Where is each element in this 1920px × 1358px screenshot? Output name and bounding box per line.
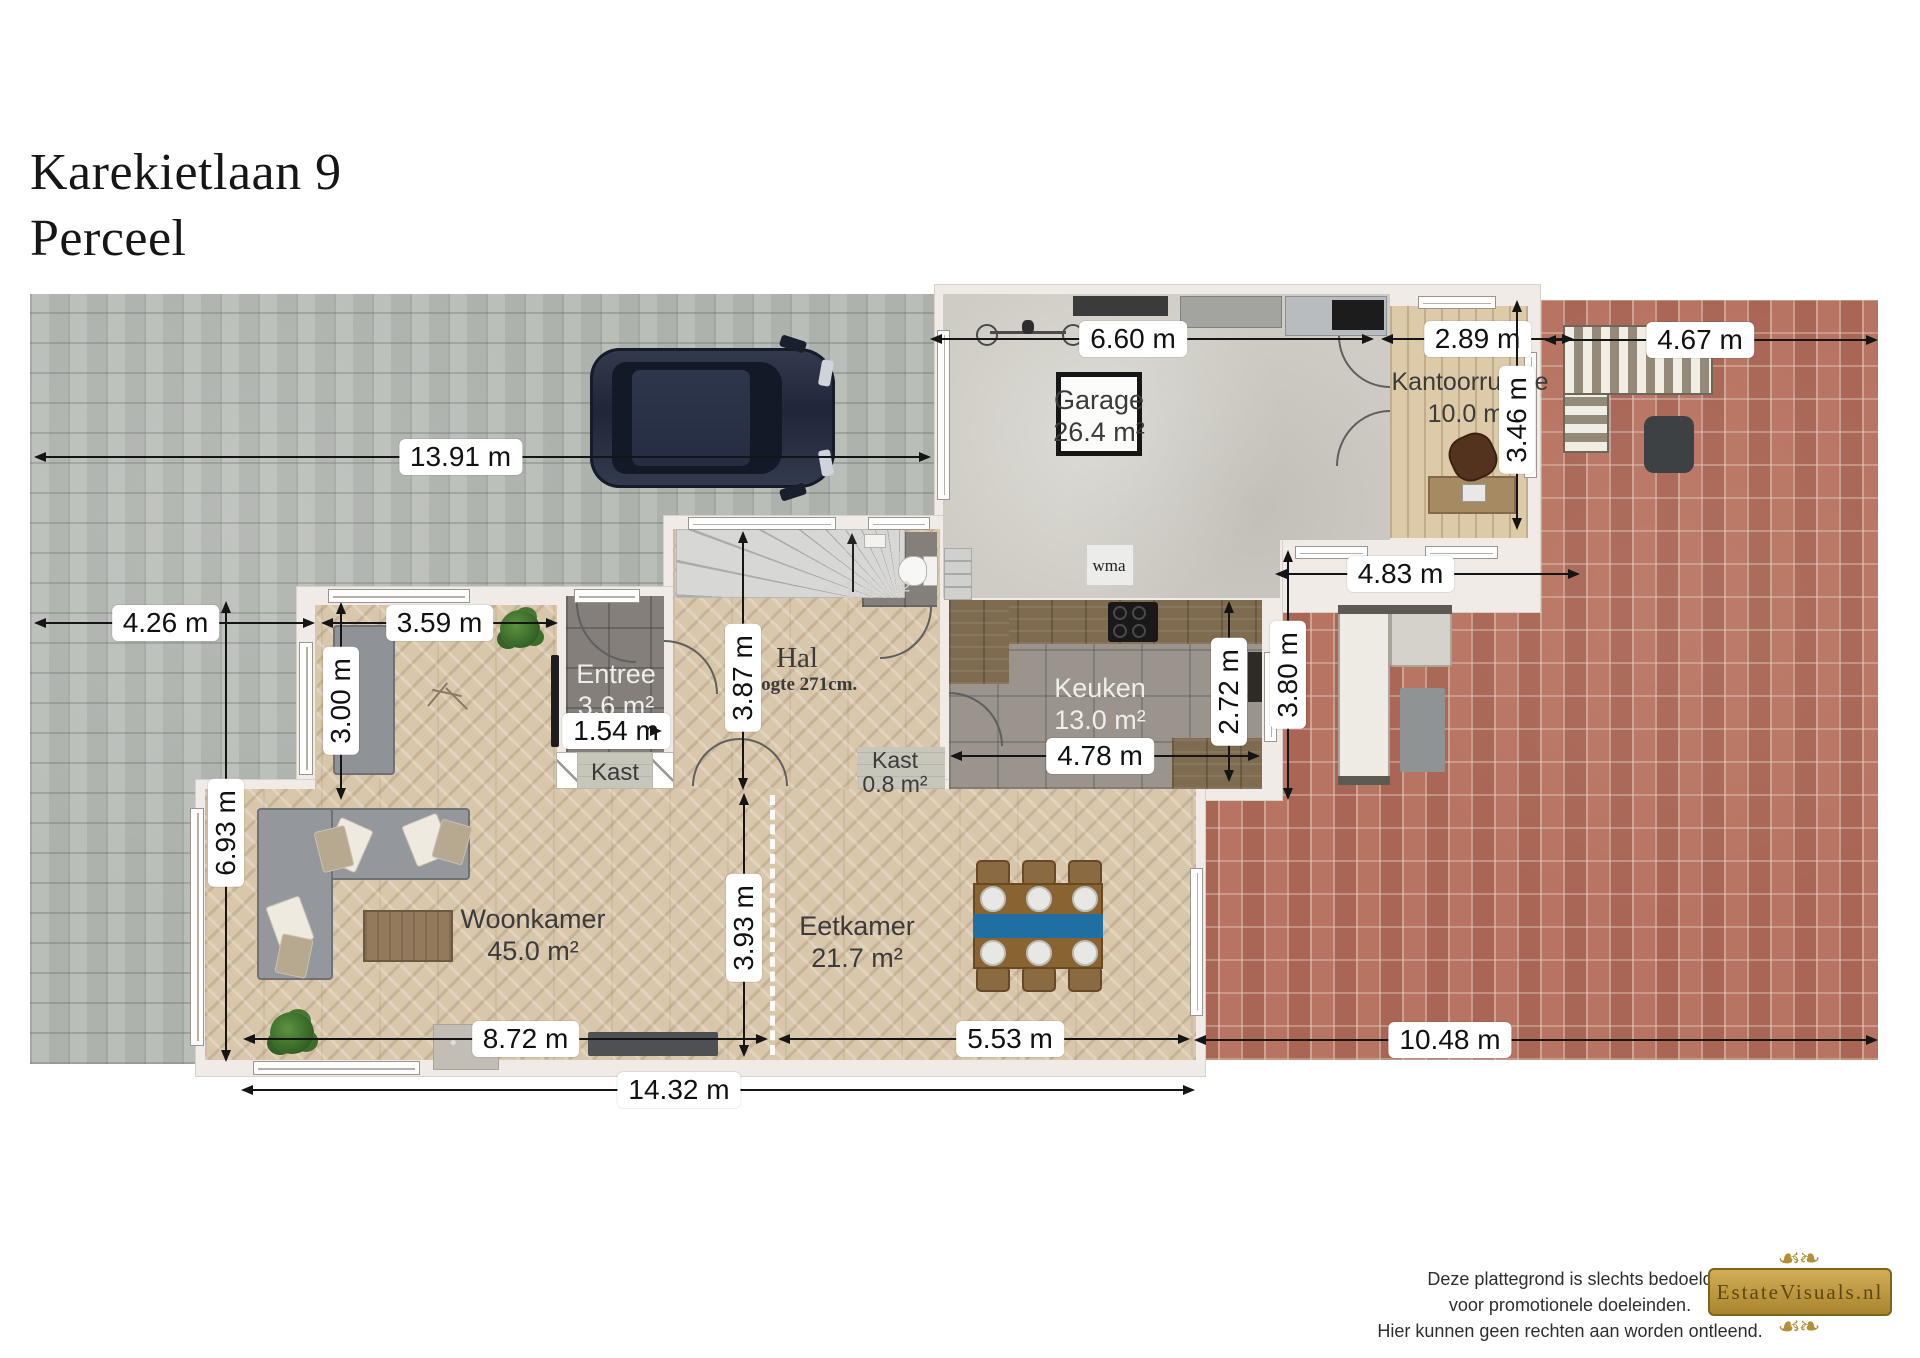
car-roof (632, 370, 750, 466)
window-eetkamer-right (1190, 868, 1203, 1016)
window-kantoor-top (1418, 296, 1496, 309)
dim-patio-width: 10.48 m (1196, 1039, 1876, 1041)
toilet-basin (864, 534, 886, 548)
logo-flourish-bottom: ☙❧ (1708, 1316, 1888, 1336)
dim-living-depth: 3.93 m (743, 795, 745, 1055)
dim-patio-depth: 3.80 m (1287, 552, 1289, 798)
patio-dark-table (1644, 416, 1694, 473)
dim-woonkamer-width: 8.72 m (245, 1038, 766, 1040)
tv-cabinet (588, 1032, 718, 1056)
eetkamer-label: Eetkamer 21.7 m² (757, 910, 957, 974)
plant-living (270, 1012, 314, 1054)
burner (1132, 624, 1146, 638)
window-living-left (190, 808, 204, 1046)
plate (980, 886, 1006, 912)
burner (1113, 606, 1127, 620)
garage-cabinet (1180, 296, 1282, 328)
fridge (1248, 652, 1262, 702)
window-toilet-top (868, 517, 930, 530)
window-sitting-left (299, 642, 313, 775)
kast-hal-label: Kast 0.8 m² (835, 748, 955, 796)
lounge-sofa-back-top (1338, 605, 1452, 614)
dim-garage-width: 6.60 m (932, 338, 1372, 340)
dim-entree-width: 1.54 m (572, 730, 660, 732)
dim-house-width: 14.32 m (243, 1089, 1193, 1091)
plate (1072, 886, 1098, 912)
plate (1026, 940, 1052, 966)
toilet-label: 1.4 m² (836, 575, 916, 607)
title-address: Karekietlaan 9 (30, 140, 342, 206)
plate (1026, 886, 1052, 912)
logo-plaque: EstateVisuals.nl (1708, 1268, 1892, 1316)
woonkamer-label: Woonkamer 45.0 m² (433, 903, 633, 967)
lounge-sofa-back-bottom (1338, 776, 1390, 785)
plate (980, 940, 1006, 966)
garage-label: Garage 26.4 m² (1011, 384, 1187, 448)
dim-garden-left-depth: 6.93 m (225, 603, 227, 1060)
burner (1132, 606, 1146, 620)
dim-sitting-depth: 3.00 m (340, 604, 342, 798)
logo-flourish-top: ☙❧ (1708, 1248, 1888, 1268)
kantoorruimte-label: Kantoorruimte 10.0 m² (1370, 366, 1570, 430)
floorplan-page: Karekietlaan 9 Perceel (0, 0, 1920, 1358)
patio-coffee-table (1400, 688, 1445, 772)
garage-step (944, 548, 972, 600)
dim-patio-top-width: 4.67 m (1546, 339, 1876, 341)
dim-sitting-width: 3.59 m (323, 622, 556, 624)
garage-stove (1332, 300, 1384, 330)
dim-eetkamer-width: 5.53 m (780, 1038, 1188, 1040)
title-subtitle: Perceel (30, 206, 342, 272)
window-sitting-top (328, 589, 470, 603)
wasmachine-label: wma (1086, 556, 1132, 576)
window-hal-top (688, 517, 836, 530)
bicycle-wheel-rear (976, 324, 998, 346)
window-living-bottom (253, 1061, 420, 1075)
table-runner (973, 914, 1103, 938)
dining-chair (1068, 966, 1102, 992)
garage-door-left (937, 330, 950, 500)
dining-chair (976, 966, 1010, 992)
dining-chair (1022, 966, 1056, 992)
page-title: Karekietlaan 9 Perceel (30, 140, 342, 272)
dim-front-left-width: 4.26 m (36, 622, 313, 624)
dim-kantoor-depth: 3.46 m (1516, 302, 1518, 528)
lounge-sofa-vertical (1338, 605, 1390, 785)
dim-hal-depth: 3.87 m (742, 533, 744, 788)
kitchen-counter-left (949, 600, 1009, 684)
estatevisuals-logo: ☙❧ EstateVisuals.nl ☙❧ (1708, 1248, 1888, 1336)
plant-sitting (500, 610, 540, 648)
burner (1113, 624, 1127, 638)
lounge-sofa-chaise (1390, 605, 1452, 667)
dim-keuken-depth: 2.72 m (1228, 603, 1230, 780)
stairs-up-arrowhead (847, 533, 857, 544)
garage-shelf (1073, 296, 1168, 316)
keuken-label: Keuken 13.0 m² (1020, 672, 1180, 736)
plate (1072, 940, 1098, 966)
dim-driveway-width: 13.91 m (36, 456, 929, 458)
bicycle-saddle (1022, 320, 1034, 334)
kast-entree-label: Kast (555, 757, 675, 789)
dim-keuken-width: 4.78 m (952, 755, 1258, 757)
front-door (574, 589, 640, 603)
laptop (1462, 484, 1486, 502)
dim-patio-strip-width: 4.83 m (1277, 573, 1578, 575)
